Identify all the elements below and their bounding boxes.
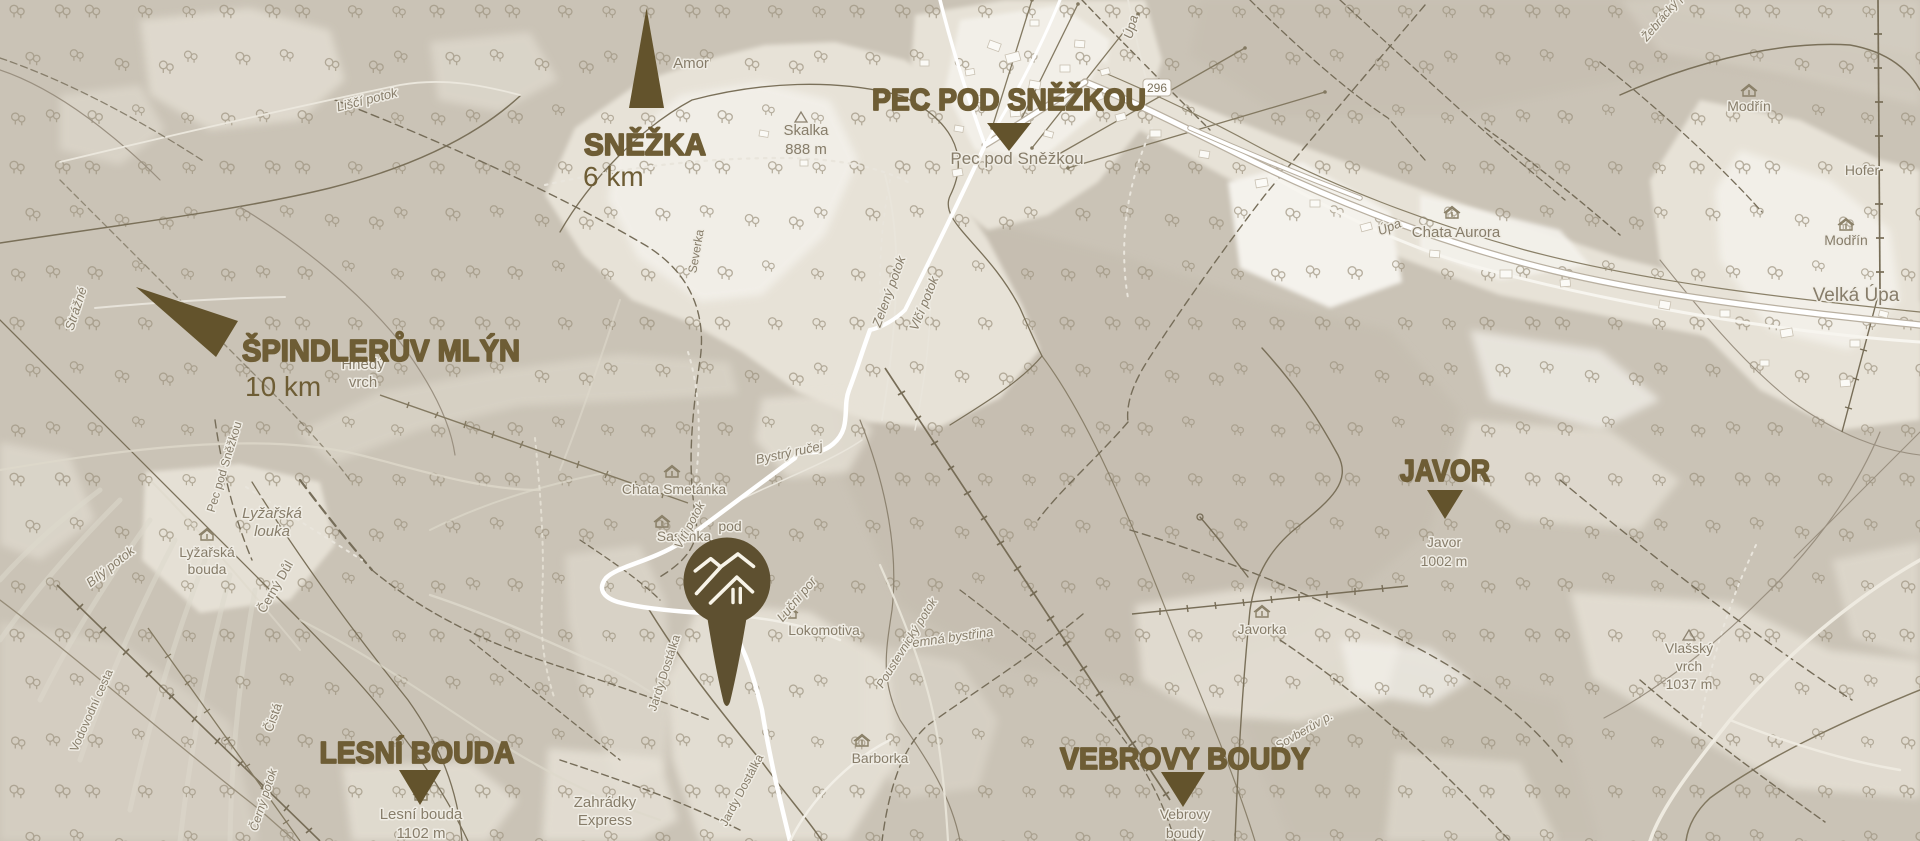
svg-text:Pec pod Sněžkou: Pec pod Sněžkou <box>950 149 1083 168</box>
svg-text:LESNÍ BOUDA: LESNÍ BOUDA <box>320 735 515 770</box>
svg-text:888 m: 888 m <box>785 141 827 158</box>
svg-text:Vebrovy: Vebrovy <box>1160 806 1211 822</box>
svg-text:1102 m: 1102 m <box>397 825 446 841</box>
svg-text:vrch: vrch <box>349 374 377 391</box>
svg-text:296: 296 <box>1147 81 1167 95</box>
svg-text:Barborka: Barborka <box>852 750 909 766</box>
svg-text:Javor: Javor <box>1427 534 1462 550</box>
svg-text:bouda: bouda <box>188 561 227 577</box>
svg-text:ŠPINDLERŮV MLÝN: ŠPINDLERŮV MLÝN <box>242 330 520 368</box>
svg-text:Zahrádky: Zahrádky <box>574 794 637 811</box>
svg-text:louka: louka <box>254 523 290 540</box>
svg-text:boudy: boudy <box>1166 825 1204 841</box>
svg-text:Lyžařská: Lyžařská <box>242 505 302 522</box>
svg-text:10 km: 10 km <box>245 371 321 402</box>
svg-text:pod: pod <box>718 518 741 534</box>
svg-text:Chata Aurora: Chata Aurora <box>1412 224 1501 241</box>
svg-text:1002 m: 1002 m <box>1421 553 1468 569</box>
svg-text:JAVOR: JAVOR <box>1400 453 1490 488</box>
svg-text:SNĚŽKA: SNĚŽKA <box>584 126 706 162</box>
svg-text:Chata Smetánka: Chata Smetánka <box>622 481 726 497</box>
svg-text:Hofer: Hofer <box>1845 162 1880 178</box>
svg-text:Skalka: Skalka <box>783 122 829 139</box>
svg-text:Express: Express <box>578 812 632 829</box>
svg-text:Vlašský: Vlašský <box>1665 640 1713 656</box>
svg-text:VEBROVY BOUDY: VEBROVY BOUDY <box>1060 741 1310 776</box>
svg-text:Lyžařská: Lyžařská <box>179 544 235 560</box>
svg-text:Modřín: Modřín <box>1727 98 1771 114</box>
svg-text:PEC POD SNĚŽKOU: PEC POD SNĚŽKOU <box>872 81 1146 117</box>
svg-text:Javorka: Javorka <box>1237 621 1286 637</box>
svg-text:Lokomotiva: Lokomotiva <box>788 622 860 638</box>
svg-text:6 km: 6 km <box>583 161 644 192</box>
svg-text:Modřín: Modřín <box>1824 232 1868 248</box>
svg-text:1037 m: 1037 m <box>1666 676 1713 692</box>
svg-text:Amor: Amor <box>673 55 709 72</box>
svg-text:Velká Úpa: Velká Úpa <box>1813 284 1900 306</box>
svg-text:vrch: vrch <box>1676 658 1702 674</box>
svg-text:Lesní bouda: Lesní bouda <box>380 806 463 823</box>
